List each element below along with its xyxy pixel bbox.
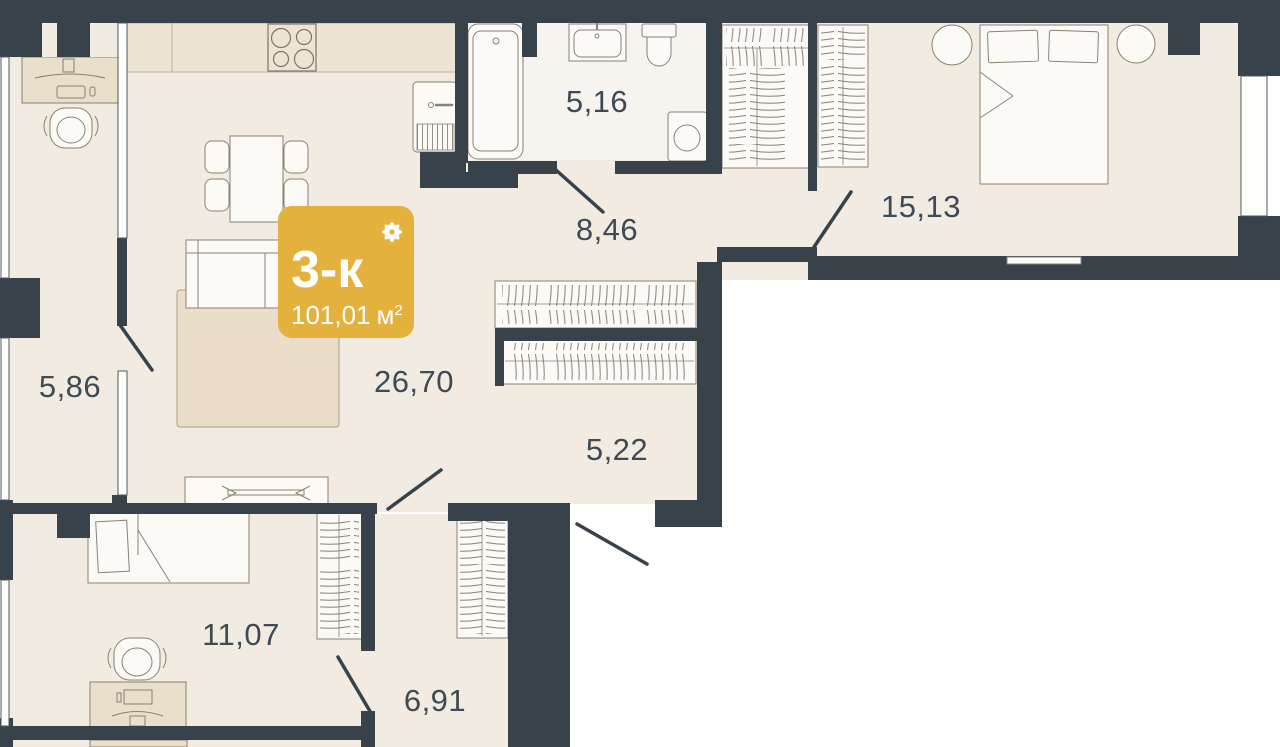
floor-plan: 5,16 8,46 15,13 5,86 26,70 5,22 11,07 6,…	[0, 0, 1280, 747]
wall-between-wardrobes	[495, 328, 702, 341]
snowflake-icon	[382, 222, 402, 242]
badge-rooms-label: 3-к	[291, 241, 364, 299]
wall-column-bath	[706, 23, 722, 173]
badge-area-sup: 2	[394, 302, 402, 319]
wall-entry-column	[508, 521, 570, 747]
chair-icon	[205, 179, 229, 211]
table-top	[230, 136, 283, 222]
nightstand-icon	[932, 25, 972, 65]
room-label-bedroom-master: 15,13	[881, 189, 961, 224]
washing-machine-icon	[668, 112, 707, 161]
apartment-badge[interactable]: 3-к 101,01м2	[278, 206, 414, 338]
bathroom-sink-icon	[569, 21, 626, 61]
stove-icon	[268, 24, 316, 71]
window-left-3	[1, 580, 9, 726]
wall-bedroom-second-right-a	[361, 514, 375, 651]
shaft-notch	[90, 23, 118, 57]
wall-bath-bottom-right	[615, 161, 722, 174]
wall-corridor-right	[697, 262, 722, 507]
wall-left-mid	[0, 500, 13, 580]
room-label-corridor: 5,22	[586, 432, 648, 467]
badge-area-value: 101,01	[291, 300, 371, 330]
wall-bedroom-second-bottom	[8, 726, 374, 740]
tv-stand-icon	[185, 477, 328, 505]
wall-pillar-left	[0, 278, 40, 338]
room-label-bedroom-second: 11,07	[202, 617, 280, 652]
wardrobe-bedroom-master	[818, 25, 868, 167]
window-partition-2	[118, 371, 127, 495]
wardrobe-corridor-row1	[495, 281, 696, 328]
wall-pillar-bedroom-master	[1168, 23, 1200, 55]
wall-living-bottom	[8, 503, 377, 514]
wardrobe-corridor-row2	[503, 339, 696, 384]
neighbor-unit-strip	[0, 740, 379, 747]
wardrobe-bedroom-second	[317, 513, 362, 639]
window-partition-1	[118, 23, 127, 238]
shaft-notch	[42, 23, 57, 57]
wardrobe-hall-top	[722, 25, 810, 168]
wall-wardrobe-left	[495, 328, 504, 386]
radiator-icon	[1007, 257, 1081, 264]
wall-southeast-bar	[717, 247, 812, 262]
wall-living-bar	[420, 172, 518, 188]
wall-pillar-bedroom-second	[57, 514, 90, 538]
wall-right-a	[1238, 23, 1280, 76]
badge-area-unit: м	[377, 300, 395, 330]
bed-master-icon	[980, 25, 1108, 184]
wall-partition-mid	[117, 238, 127, 326]
wall-tub-stub	[522, 23, 537, 57]
nightstand-icon	[1117, 25, 1155, 63]
window-left-2	[1, 338, 9, 500]
balcony-desk-icon	[22, 57, 118, 103]
wall-entry-right	[655, 500, 722, 527]
room-label-hallway-entry: 6,91	[404, 683, 466, 718]
wall-partition-bottom	[112, 495, 127, 512]
bed-second-icon	[88, 513, 249, 583]
neighbor-desk-fragment	[90, 740, 187, 747]
badge-area-label: 101,01м2	[291, 300, 403, 330]
window-left-1	[1, 57, 9, 278]
kitchen-sink-icon	[413, 82, 457, 152]
wall-entry-bar	[448, 503, 570, 521]
floor-plan-canvas: 5,16 8,46 15,13 5,86 26,70 5,22 11,07 6,…	[0, 0, 1280, 747]
wardrobe-hallway-entry	[457, 514, 508, 638]
chair-icon	[284, 141, 308, 173]
office-chair-icon	[108, 638, 166, 680]
room-label-bathroom: 5,16	[566, 84, 628, 119]
wall-bedroom-master-left-a	[808, 23, 817, 191]
wall-top	[0, 0, 1280, 23]
room-label-hallway-main: 8,46	[576, 212, 638, 247]
chair-icon	[205, 141, 229, 173]
wall-kitchen-bath	[455, 23, 468, 163]
room-label-living-kitchen: 26,70	[374, 364, 454, 399]
window-right	[1241, 76, 1267, 216]
room-label-balcony: 5,86	[39, 369, 101, 404]
door-apartment-entry	[577, 524, 647, 564]
wall-right-b	[1238, 216, 1280, 280]
bathtub-icon	[468, 24, 523, 159]
